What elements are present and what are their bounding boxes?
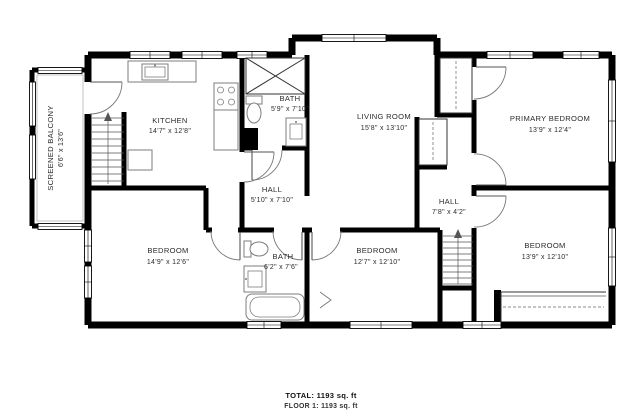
room-dims-bedroom-middle: 12'7" x 12'10" [354,259,401,266]
faucet [295,121,297,123]
window [609,228,616,286]
room-label-bedroom-left: BEDROOM [147,246,188,255]
room-dims-bath-top: 5'9" x 7'10" [271,106,309,113]
total-area-text: TOTAL: 1193 sq. ft [285,391,357,400]
wall-chunk [240,128,258,150]
door-primary-bedroom [474,154,506,185]
window [130,52,170,59]
window [350,322,412,329]
stair-arrow [104,112,112,121]
door-balcony-kitchen [90,82,122,114]
room-label-bath-bottom: BATH [273,252,294,261]
window [30,135,36,179]
bifold-closet-door [320,292,331,308]
door-kitchen-hall [244,152,274,182]
staircase-kitchen [92,112,124,184]
room-dims-kitchen: 14'7" x 12'8" [149,128,192,135]
floor1-area-text: FLOOR 1: 1193 sq. ft [284,403,358,410]
door-bath-hall [252,150,282,180]
toilet-bowl [250,242,268,256]
stove [214,83,238,110]
bedroom-right-closet [501,292,606,322]
window [563,52,599,59]
room-label-hall-right: HALL [439,197,459,206]
room-label-primary-bedroom: PRIMARY BEDROOM [510,114,590,123]
outer-walls [32,38,612,325]
room-label-bedroom-right: BEDROOM [524,241,565,250]
x-closet [246,58,305,94]
room-label: SCREENED BALCONY [46,105,55,190]
interior-walls [30,55,613,325]
faucet [154,65,156,67]
windows [30,35,616,329]
room-dims-bedroom-left: 14'9" x 12'6" [147,259,190,266]
room-label-bath-top: BATH [280,94,301,103]
room-labels: SCREENED BALCONY 6'6" x 13'6" KITCHEN 14… [46,94,590,271]
room-label-kitchen: KITCHEN [152,116,187,125]
closet-post [494,290,501,322]
room-label-bedroom-middle: BEDROOM [356,246,397,255]
room-label-hall-center: HALL [262,185,282,194]
window [30,82,36,126]
window [38,224,82,230]
floorplan-page: SCREENED BALCONY 6'6" x 13'6" KITCHEN 14… [0,0,640,415]
toilet-bowl [247,103,261,123]
balcony-post [30,126,36,135]
primary-walkin-closet [440,58,472,113]
hall-closet [419,119,447,165]
door-bedroom-right [474,196,506,227]
bath-vanity [244,266,266,292]
window [609,80,616,162]
room-dims-hall-right: 7'8" x 4'2" [432,209,466,216]
window [247,322,281,329]
door-primary-closet [474,67,506,99]
staircase-hall [443,229,473,284]
room-dims-living-room: 15'8" x 13'10" [361,125,408,132]
window [182,52,222,59]
window [322,35,386,42]
room-dims-bedroom-right: 13'9" x 12'10" [522,254,569,261]
door-bedroom-middle [312,231,341,260]
door-bedroom-left [211,231,240,260]
window [85,266,92,298]
room-label-living-room: LIVING ROOM [357,112,411,121]
faucet [245,278,247,280]
label-screened-balcony: SCREENED BALCONY 6'6" x 13'6" [46,105,65,190]
area-summary: TOTAL: 1193 sq. ft FLOOR 1: 1193 sq. ft [284,391,358,410]
floorplan-drawing: SCREENED BALCONY 6'6" x 13'6" KITCHEN 14… [0,0,640,415]
window [38,68,82,74]
room-dims-primary-bedroom: 13'9" x 12'4" [529,127,572,134]
room-dims: 6'6" x 13'6" [58,129,65,167]
room-dims-hall-center: 5'10" x 7'10" [251,197,294,204]
window [487,52,533,59]
window [237,52,267,59]
room-dims-bath-bottom: 6'2" x 7'6" [264,264,298,271]
window [463,322,501,329]
kitchen-cabinet [128,150,152,170]
window [85,230,92,262]
kitchen-counter-side [214,110,238,150]
stair-arrow [454,229,462,238]
